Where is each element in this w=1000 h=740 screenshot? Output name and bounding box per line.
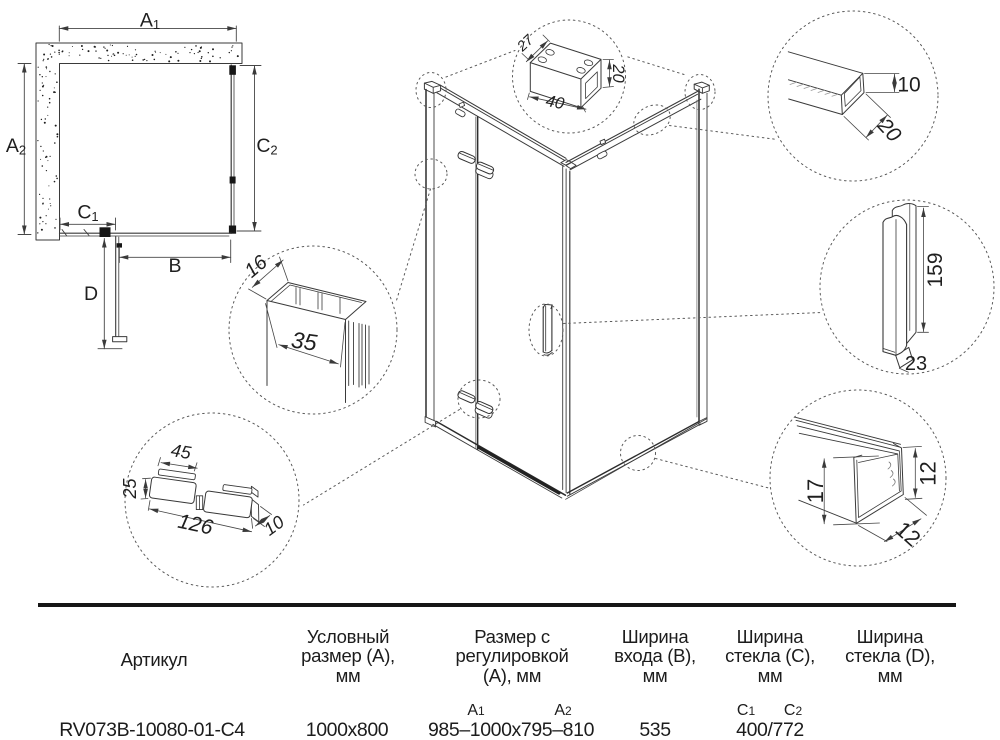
svg-text:35: 35	[290, 326, 319, 355]
svg-text:12: 12	[915, 461, 940, 485]
svg-text:C2: C2	[256, 135, 277, 158]
svg-text:23: 23	[905, 353, 927, 375]
svg-text:C1: C1	[77, 202, 98, 225]
svg-text:10: 10	[897, 73, 920, 96]
svg-text:45: 45	[169, 440, 193, 463]
svg-text:D: D	[84, 283, 98, 305]
svg-text:25: 25	[120, 478, 140, 500]
svg-text:17: 17	[803, 479, 828, 503]
svg-text:20: 20	[609, 63, 627, 83]
svg-text:A1: A1	[140, 10, 160, 33]
svg-text:B: B	[168, 255, 181, 277]
svg-text:159: 159	[924, 252, 947, 287]
svg-text:A2: A2	[6, 135, 26, 158]
